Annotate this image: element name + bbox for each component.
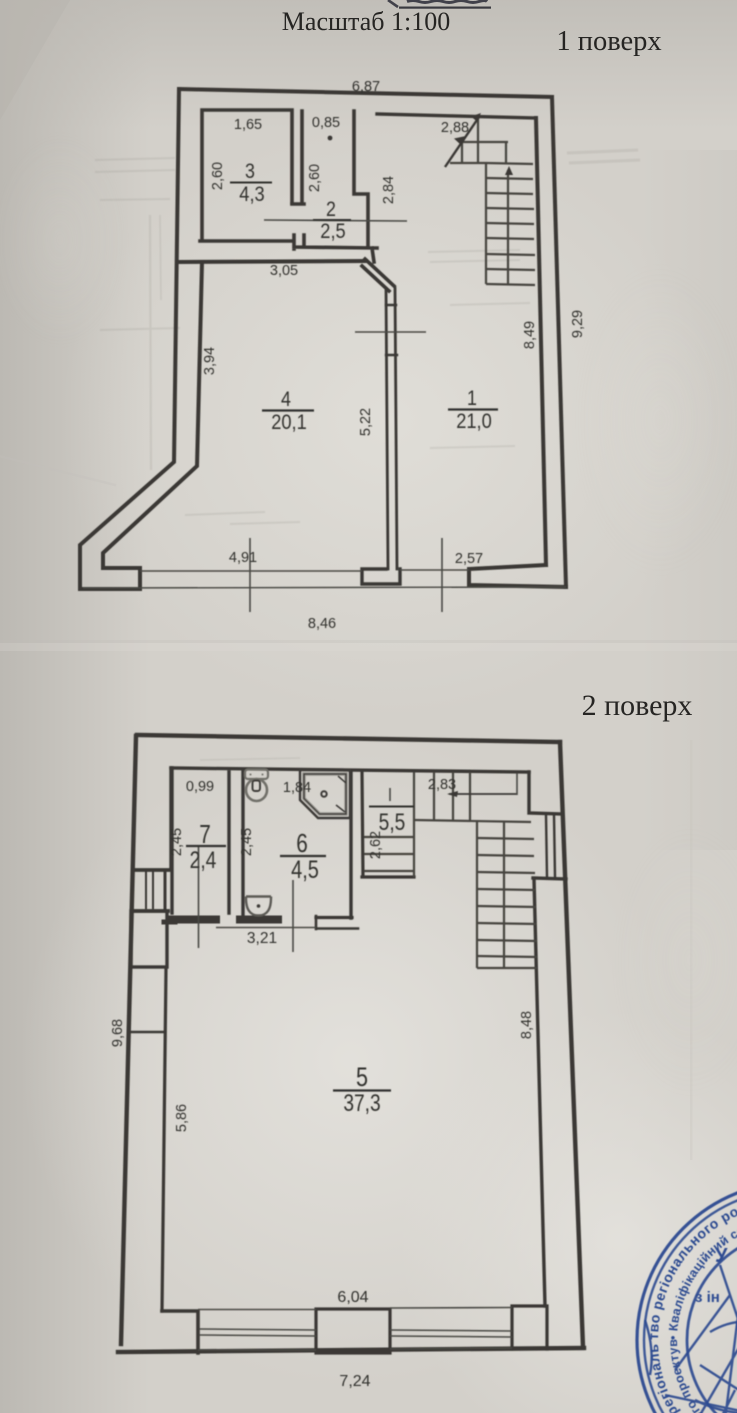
svg-text:3: 3 bbox=[245, 160, 255, 184]
svg-text:0,85: 0,85 bbox=[312, 115, 340, 131]
svg-text:4,3: 4,3 bbox=[239, 183, 264, 207]
svg-text:6,04: 6,04 bbox=[337, 1289, 368, 1306]
svg-text:2,57: 2,57 bbox=[455, 551, 483, 567]
svg-text:3,05: 3,05 bbox=[270, 263, 298, 279]
svg-text:Масштаб 1:100: Масштаб 1:100 bbox=[282, 7, 450, 36]
svg-text:6: 6 bbox=[296, 829, 308, 858]
svg-text:4: 4 bbox=[281, 388, 291, 412]
svg-text:1,65: 1,65 bbox=[234, 117, 262, 133]
svg-text:з ін: з ін bbox=[695, 1289, 720, 1306]
svg-text:0,99: 0,99 bbox=[186, 779, 214, 795]
svg-text:2: 2 bbox=[326, 198, 336, 222]
svg-text:1 поверх: 1 поверх bbox=[556, 26, 661, 57]
svg-text:2 поверх: 2 поверх bbox=[582, 689, 693, 722]
svg-text:2,88: 2,88 bbox=[441, 120, 469, 136]
svg-text:4,5: 4,5 bbox=[291, 856, 319, 884]
svg-text:3,94: 3,94 bbox=[202, 347, 218, 375]
svg-text:2,84: 2,84 bbox=[381, 176, 397, 204]
svg-text:3,21: 3,21 bbox=[247, 930, 277, 947]
svg-text:9,68: 9,68 bbox=[110, 1019, 126, 1047]
svg-text:8,48: 8,48 bbox=[519, 1011, 535, 1039]
svg-text:2,5: 2,5 bbox=[320, 220, 345, 244]
svg-text:8,46: 8,46 bbox=[308, 616, 336, 632]
svg-text:5,86: 5,86 bbox=[174, 1104, 190, 1132]
svg-text:2,60: 2,60 bbox=[210, 162, 226, 190]
svg-text:2,45: 2,45 bbox=[239, 828, 255, 856]
svg-text:2,45: 2,45 bbox=[169, 828, 185, 856]
svg-text:У: У bbox=[715, 1245, 728, 1267]
svg-text:1,84: 1,84 bbox=[283, 780, 311, 796]
svg-text:7,24: 7,24 bbox=[339, 1373, 370, 1390]
svg-text:2,60: 2,60 bbox=[307, 164, 323, 192]
svg-text:9,29: 9,29 bbox=[570, 310, 586, 338]
svg-text:7: 7 bbox=[199, 820, 211, 849]
svg-text:5,22: 5,22 bbox=[358, 408, 374, 436]
svg-text:37,3: 37,3 bbox=[343, 1089, 380, 1117]
svg-text:2,83: 2,83 bbox=[428, 777, 456, 793]
svg-text:8,49: 8,49 bbox=[522, 321, 538, 349]
svg-text:6,87: 6,87 bbox=[352, 79, 380, 95]
svg-text:4,91: 4,91 bbox=[229, 550, 257, 566]
svg-text:20,1: 20,1 bbox=[271, 411, 307, 435]
svg-text:21,0: 21,0 bbox=[456, 410, 492, 434]
svg-text:1: 1 bbox=[467, 387, 477, 411]
svg-text:2,4: 2,4 bbox=[190, 846, 217, 874]
svg-text:5,5: 5,5 bbox=[379, 808, 406, 836]
